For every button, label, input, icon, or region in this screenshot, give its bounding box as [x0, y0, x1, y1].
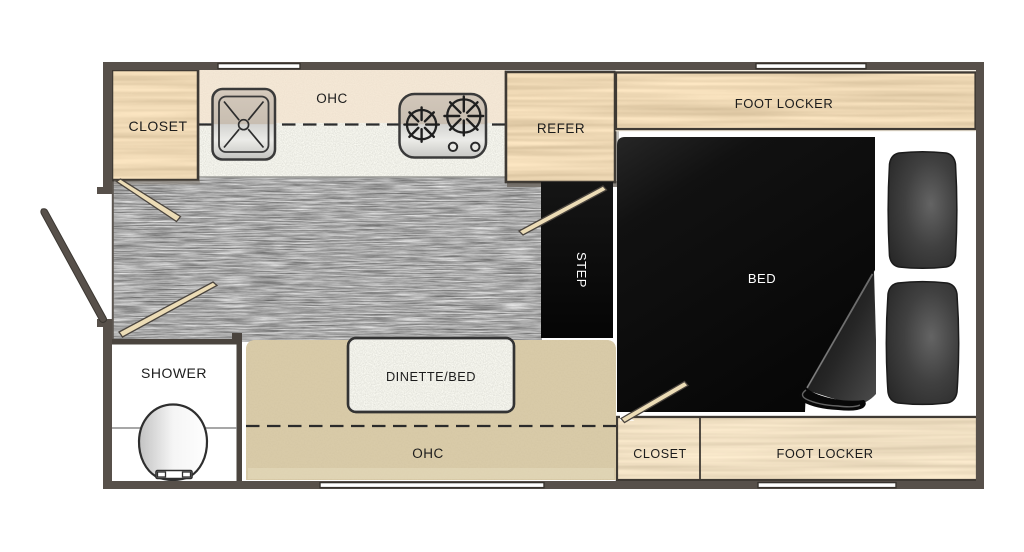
svg-text:DINETTE/BED: DINETTE/BED — [386, 369, 476, 384]
svg-text:FOOT LOCKER: FOOT LOCKER — [735, 96, 833, 111]
svg-text:SHOWER: SHOWER — [141, 365, 207, 381]
svg-text:STEP: STEP — [574, 252, 589, 288]
svg-text:BED: BED — [748, 271, 776, 286]
svg-text:CLOSET: CLOSET — [633, 447, 686, 461]
svg-text:OHC: OHC — [412, 446, 444, 461]
svg-text:FOOT LOCKER: FOOT LOCKER — [777, 446, 874, 461]
svg-text:OHC: OHC — [316, 91, 348, 106]
svg-text:CLOSET: CLOSET — [128, 118, 187, 134]
svg-text:REFER: REFER — [537, 121, 585, 136]
